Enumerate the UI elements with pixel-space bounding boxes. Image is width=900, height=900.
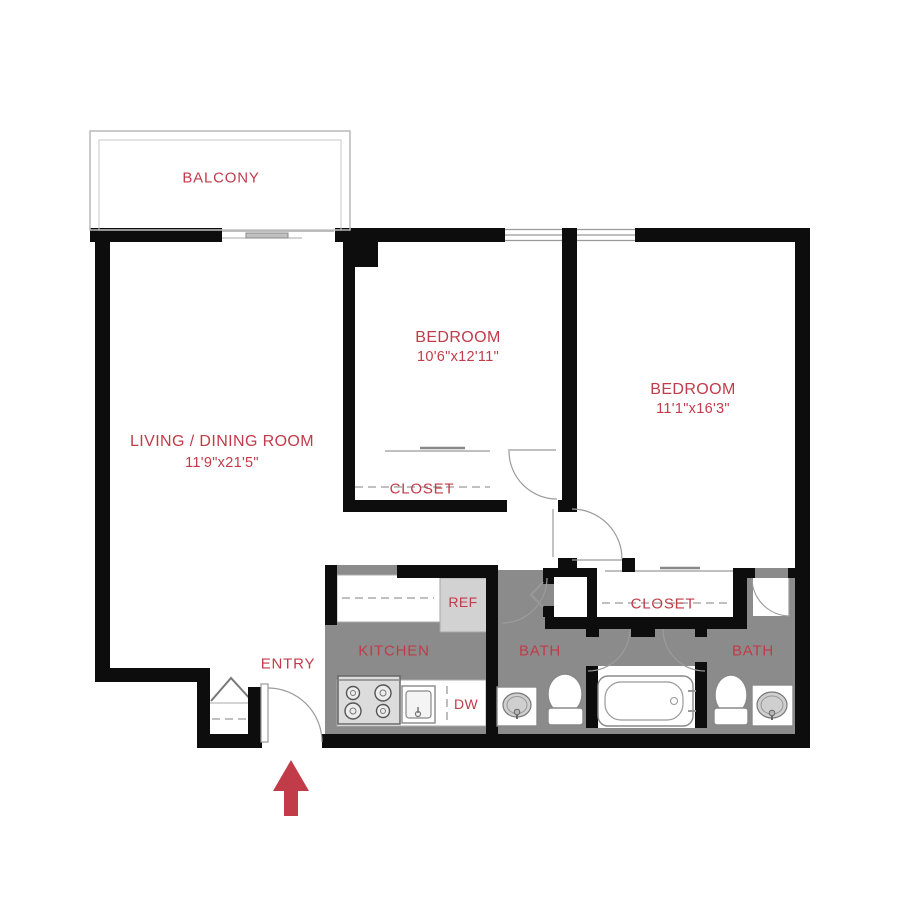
entry-door [261, 684, 322, 742]
dishwasher-label: DW [454, 696, 478, 712]
entry-arrow-icon [273, 760, 309, 816]
stove [338, 676, 400, 724]
bedroom-1-door [508, 450, 557, 499]
kitchen-sink [402, 686, 435, 723]
entry-closet-bifold-door [211, 678, 252, 701]
bedroom-1-label: BEDROOM [415, 329, 500, 347]
bath-2-toilet [714, 675, 748, 725]
closet-2-label: CLOSET [631, 596, 696, 613]
bath-1-sink [497, 687, 537, 726]
bath-1-toilet [548, 674, 583, 725]
living-dining-dimensions: 11'9"x21'5" [185, 455, 259, 471]
bath-1-label: BATH [519, 643, 561, 660]
kitchen-label: KITCHEN [358, 643, 429, 660]
bath-2-label: BATH [732, 643, 774, 660]
refrigerator-label: REF [448, 594, 477, 610]
balcony-label: BALCONY [182, 170, 259, 187]
floor-plan: BALCONY LIVING / DINING ROOM 11'9"x21'5"… [0, 0, 900, 900]
bedroom-2-window [577, 228, 635, 242]
bedroom-1-window [505, 228, 562, 242]
bedroom-2-door [553, 509, 622, 560]
bedroom-2-dimensions: 11'1"x16'3" [656, 401, 730, 417]
bedroom-1-dimensions: 10'6"x12'11" [417, 349, 499, 365]
closet-1-label: CLOSET [390, 481, 455, 498]
living-dining-label: LIVING / DINING ROOM [130, 433, 314, 451]
entry-label: ENTRY [261, 656, 316, 673]
bedroom-2-label: BEDROOM [650, 381, 735, 399]
bathtub [598, 676, 696, 726]
bath-2-sink [752, 685, 793, 726]
